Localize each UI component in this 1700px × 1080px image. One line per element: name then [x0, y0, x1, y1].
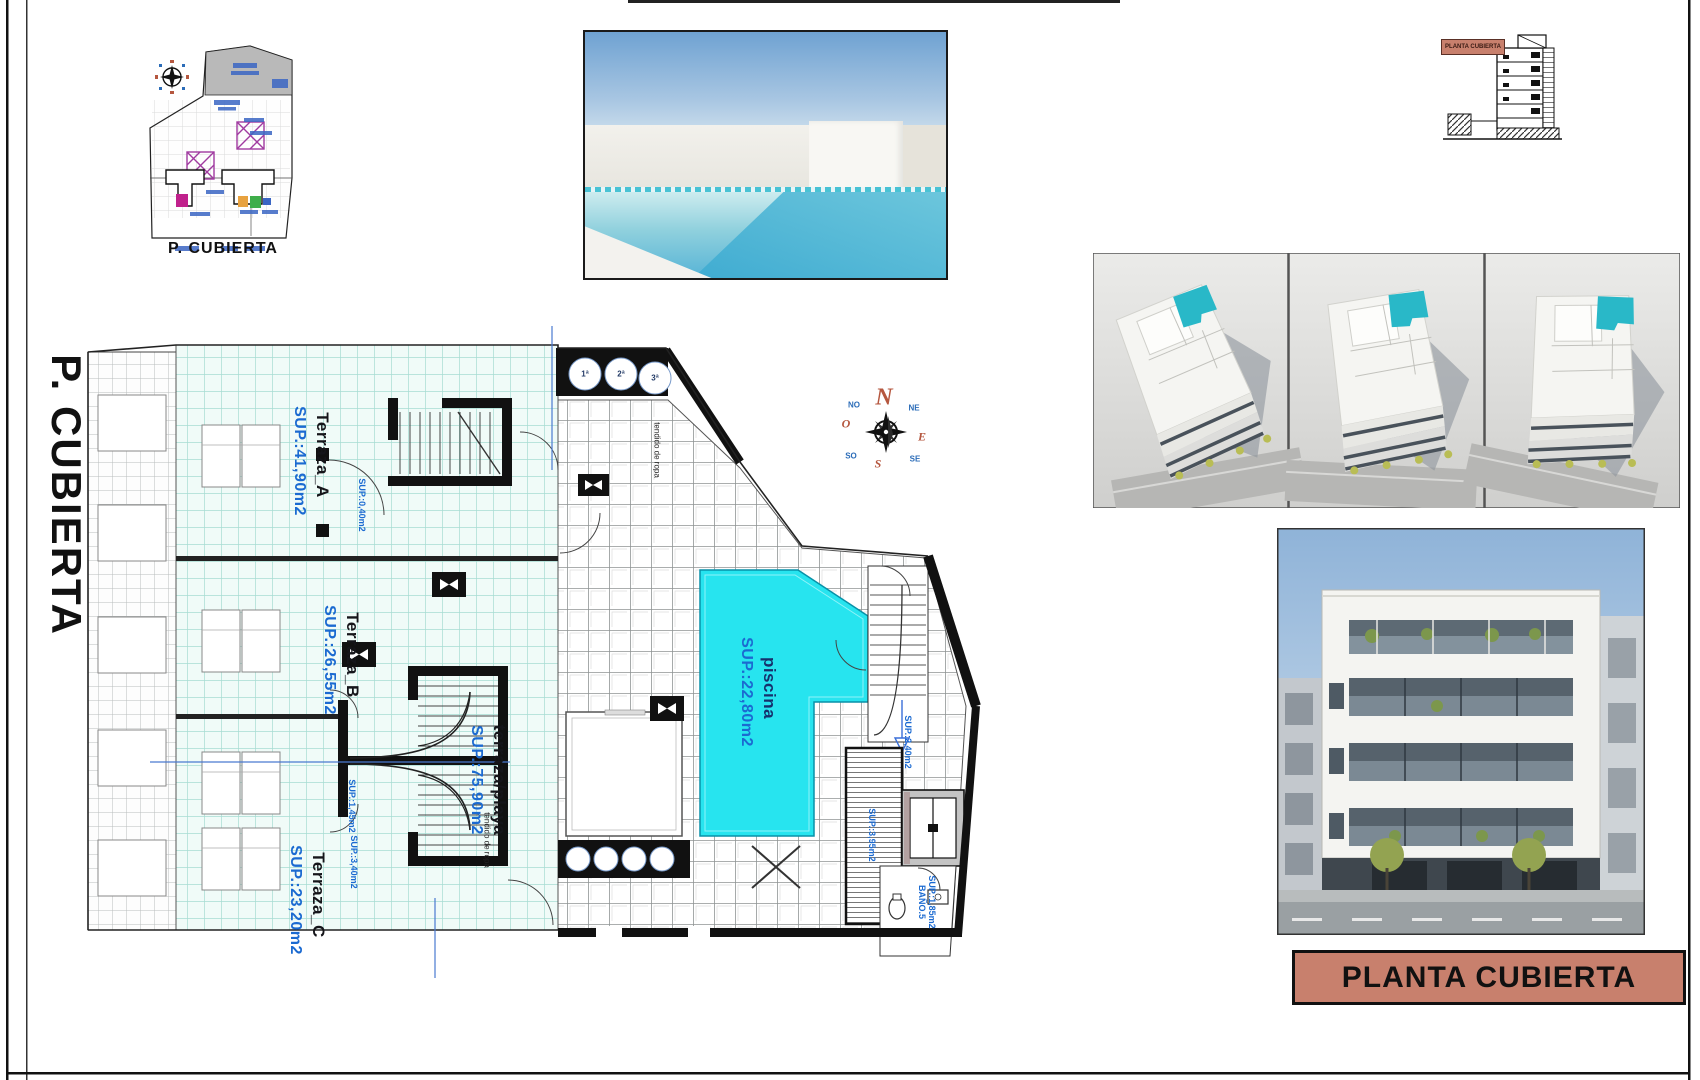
aerial-renders [1093, 253, 1680, 508]
compass-west-label: O [842, 417, 851, 432]
room-area-terraza-a: SUP.:41,90m2 [290, 406, 308, 516]
room-label-piscina: piscina [759, 657, 779, 719]
compass-ne-label: NE [908, 404, 919, 413]
compass-sw-label: SO [845, 452, 857, 461]
compass-south-label: S [875, 457, 882, 472]
compass-east-label: E [918, 430, 926, 445]
drawing-sheet: P. CUBIERTA P. CUBIERTA PLANTA CUBIERTA … [0, 0, 1700, 1080]
room-area-terraza-b: SUP.:26,55m2 [320, 605, 338, 715]
vent-label-2: 2ª [617, 370, 624, 379]
title-block-label: PLANTA CUBIERTA [1342, 961, 1636, 995]
area-bath: SUP.:1,85m2 [927, 875, 937, 928]
area-landing: SUP.:2,40m2 [903, 715, 913, 768]
area-laundry: SUP.:3,95m2 [867, 808, 877, 861]
compass-se-label: SE [910, 455, 921, 464]
label-bath-name: BAÑO.5 [917, 885, 927, 919]
area-stair-a: SUP.:0,40m2 [357, 478, 367, 531]
vent-label-1: 1ª [581, 370, 588, 379]
facade-render-svg [1277, 528, 1645, 935]
vent-label-3: 3ª [651, 374, 658, 383]
sheet-left-title: P. CUBIERTA [42, 354, 90, 636]
aerial-renders-svg [1093, 253, 1680, 508]
compass-rose [865, 411, 907, 453]
note-clothesline-2: tendido de ropa [483, 812, 492, 868]
site-plan-drawing [150, 46, 292, 251]
note-clothesline-1: tendido de ropa [653, 422, 662, 478]
room-area-piscina: SUP.:22,80m2 [737, 637, 755, 747]
room-label-terraza-a: Terraza_A [312, 412, 332, 497]
elevator [902, 790, 964, 866]
site-plan-caption: P. CUBIERTA [148, 240, 298, 258]
area-stair-b: SUP.:1,45m2 [347, 779, 357, 832]
room-label-terraza-b: Terraza_B [342, 612, 362, 697]
compass-nw-label: NO [848, 401, 860, 410]
section-label: PLANTA CUBIERTA [1445, 44, 1501, 50]
title-block: PLANTA CUBIERTA [1292, 950, 1686, 1005]
pool-render-image [583, 30, 948, 280]
facade-render [1277, 528, 1645, 935]
room-label-terraza-playa: terraza/playa [489, 725, 509, 835]
room-label-terraza-c: Terraza_C [308, 852, 328, 937]
stair-right [868, 566, 928, 752]
section-label-box: PLANTA CUBIERTA [1441, 39, 1505, 55]
area-stair-c: SUP.:3,40m2 [349, 835, 359, 888]
room-area-terraza-c: SUP.:23,20m2 [286, 845, 304, 955]
compass-north-label: N [875, 385, 892, 412]
